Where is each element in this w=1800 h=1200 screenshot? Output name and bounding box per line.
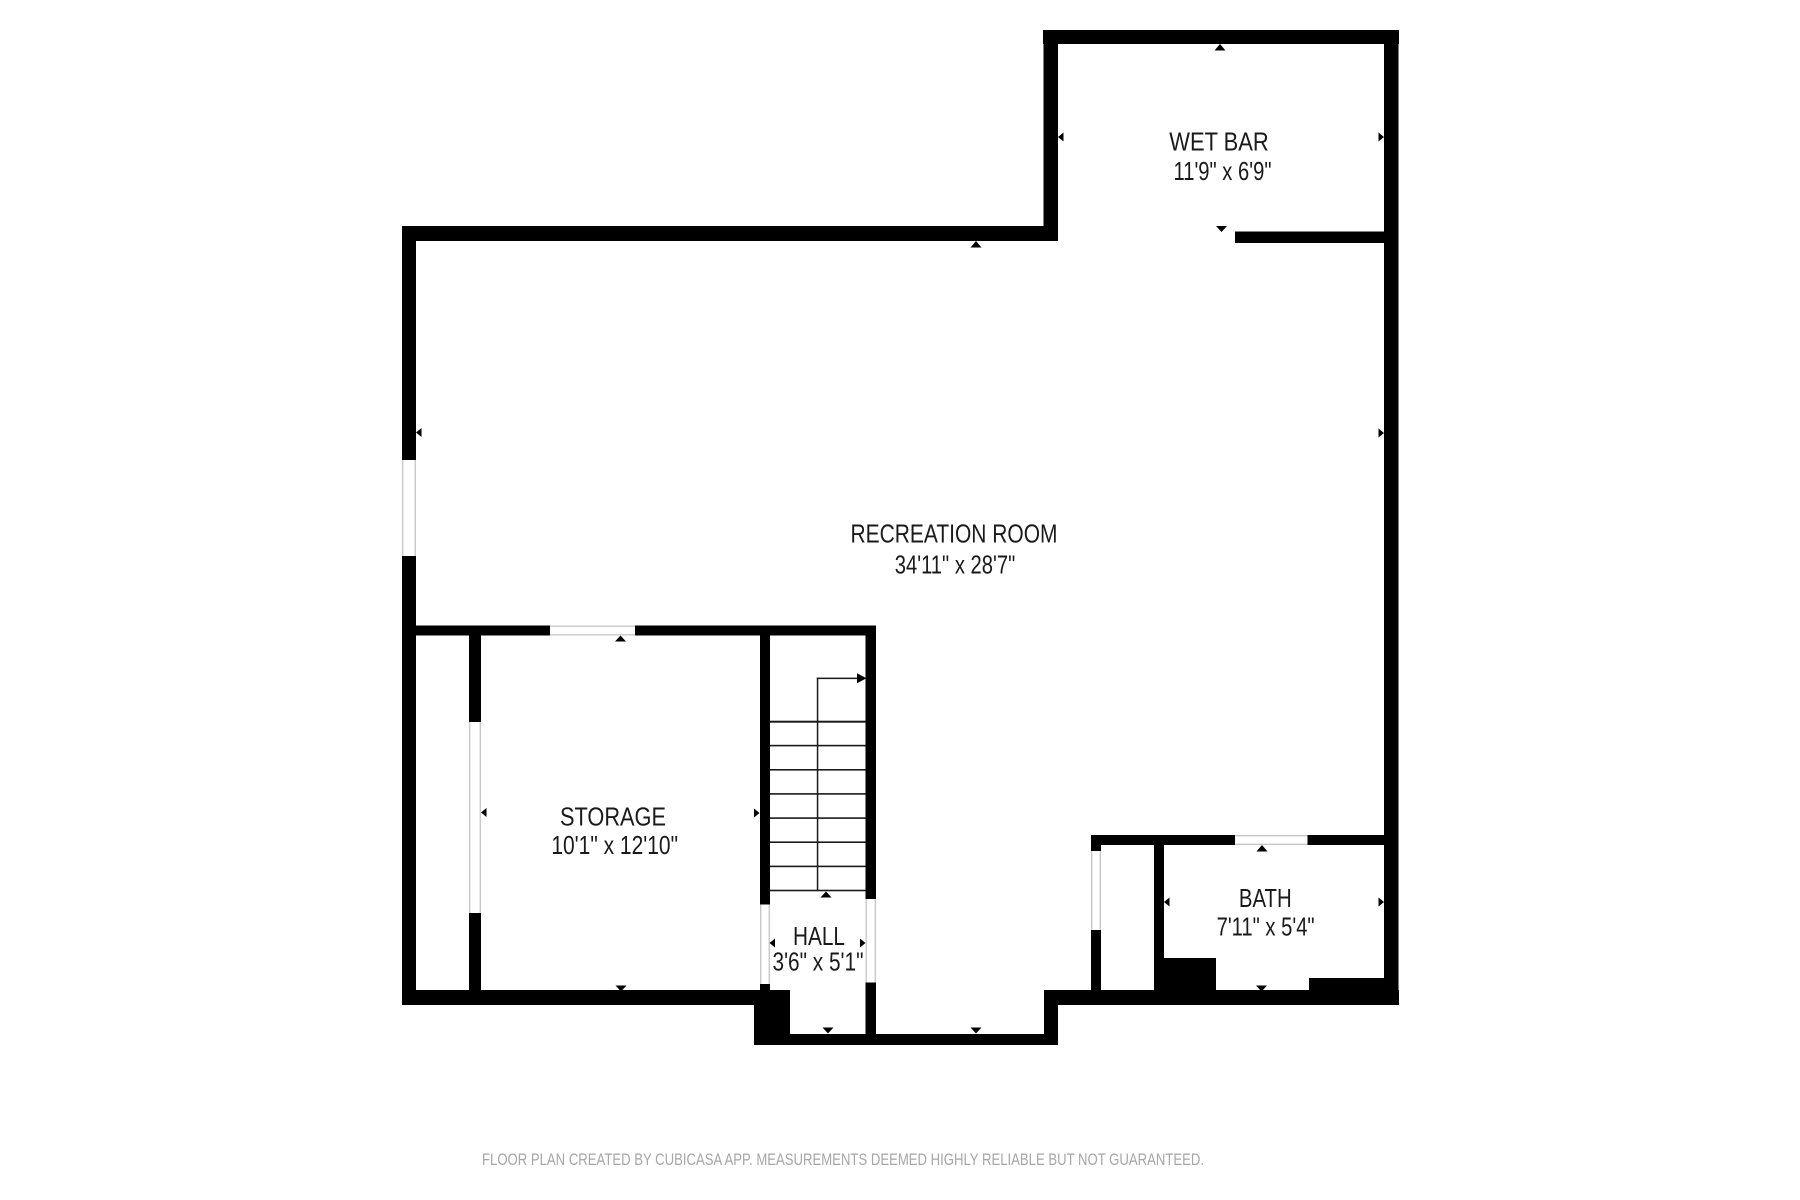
svg-text:BATH: BATH bbox=[1239, 883, 1292, 913]
svg-text:7'11" x 5'4": 7'11" x 5'4" bbox=[1217, 912, 1315, 942]
svg-text:34'11" x 28'7": 34'11" x 28'7" bbox=[895, 549, 1016, 579]
svg-text:11'9" x 6'9": 11'9" x 6'9" bbox=[1174, 156, 1272, 186]
svg-text:WET BAR: WET BAR bbox=[1169, 126, 1269, 156]
svg-text:10'1" x 12'10": 10'1" x 12'10" bbox=[551, 830, 678, 860]
svg-text:STORAGE: STORAGE bbox=[560, 801, 666, 831]
svg-text:3'6" x 5'1": 3'6" x 5'1" bbox=[773, 947, 864, 977]
svg-text:FLOOR PLAN CREATED BY CUBICASA: FLOOR PLAN CREATED BY CUBICASA APP. MEAS… bbox=[482, 1150, 1204, 1169]
svg-text:RECREATION ROOM: RECREATION ROOM bbox=[851, 519, 1058, 549]
